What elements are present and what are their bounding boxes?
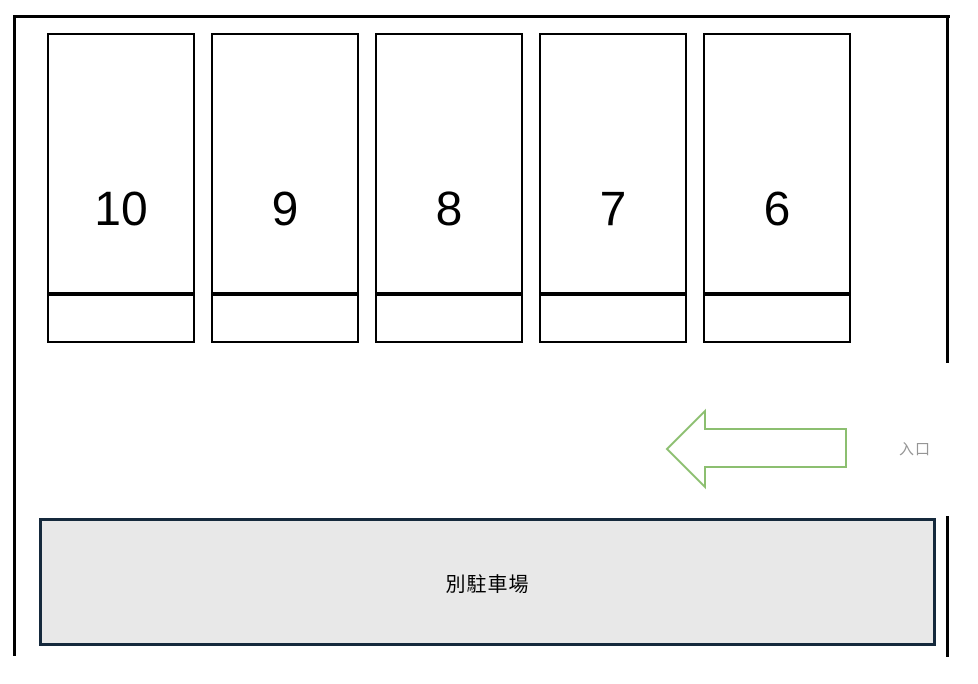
wall-left (13, 15, 16, 656)
stall-number: 10 (49, 186, 193, 234)
parking-stall-8: 8 (375, 33, 523, 294)
stall-bumper-7 (539, 294, 687, 343)
annex-parking-label: 別駐車場 (446, 568, 530, 597)
stall-number: 9 (213, 186, 357, 234)
stall-bumper-10 (47, 294, 195, 343)
stall-number: 6 (705, 186, 849, 234)
parking-stall-6: 6 (703, 33, 851, 294)
stall-number: 7 (541, 186, 685, 234)
parking-stall-10: 10 (47, 33, 195, 294)
stall-bumper-9 (211, 294, 359, 343)
stall-bumper-6 (703, 294, 851, 343)
stall-bumper-8 (375, 294, 523, 343)
parking-stall-7: 7 (539, 33, 687, 294)
wall-right-upper-segment (946, 15, 949, 363)
wall-right-lower-segment (946, 516, 949, 657)
parking-lot-diagram: 10 9 8 7 6 入口 別駐車場 (0, 0, 978, 684)
wall-top (13, 15, 950, 18)
stall-number: 8 (377, 186, 521, 234)
entrance-arrow-icon (664, 408, 848, 490)
entrance-label: 入口 (899, 441, 931, 459)
parking-stall-9: 9 (211, 33, 359, 294)
annex-parking-box: 別駐車場 (39, 518, 936, 646)
